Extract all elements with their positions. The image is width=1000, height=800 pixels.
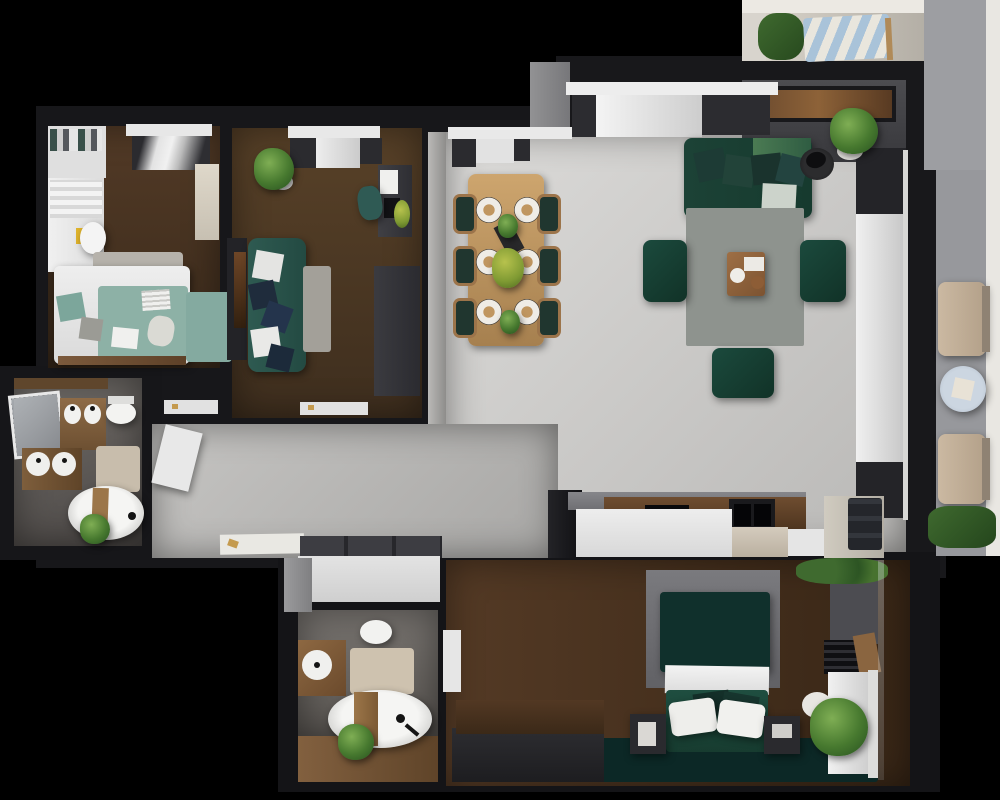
living-plant bbox=[830, 108, 878, 154]
bathw-toilet bbox=[106, 402, 136, 424]
window-bench-cushions bbox=[848, 498, 882, 550]
bedroom-terrace-glass bbox=[878, 560, 884, 780]
bedroom-plant bbox=[810, 698, 868, 756]
living-curtain-dark-left bbox=[572, 95, 596, 137]
terrace-armchair-north-frame bbox=[982, 286, 990, 352]
kids-pillow-striped bbox=[141, 289, 170, 311]
tv-panel bbox=[758, 90, 892, 118]
bedroom-hanging-plants bbox=[796, 558, 888, 584]
terrace-armchair-south-frame bbox=[982, 438, 990, 500]
bedroom-dresser-wood-top bbox=[456, 700, 604, 734]
bathw-basin-2-tap bbox=[62, 458, 67, 463]
terrace-flowers bbox=[928, 506, 996, 548]
bedroom-dresser bbox=[452, 728, 604, 782]
kids-room-door-handle bbox=[172, 404, 178, 409]
balcony-flower-plant bbox=[758, 13, 804, 60]
dining-chair-3 bbox=[456, 301, 474, 335]
dining-chair-4 bbox=[540, 197, 558, 231]
bathw-basin-2 bbox=[52, 452, 76, 476]
living-pouf-west bbox=[643, 240, 687, 302]
bathw-sink-north-2-tap bbox=[90, 406, 95, 411]
kitchen-cabinet-wood bbox=[732, 527, 788, 557]
place-setting-3 bbox=[476, 299, 502, 325]
coffee-table-tray bbox=[744, 257, 764, 271]
hall-sideboard-top bbox=[300, 536, 442, 558]
bathw-toilet-tank bbox=[108, 396, 134, 404]
office-desk-plant bbox=[394, 200, 410, 228]
dining-centerpiece-plant bbox=[492, 248, 524, 288]
bathw-shower-glass bbox=[11, 394, 63, 456]
bed-duvet bbox=[660, 592, 770, 672]
nightstand-west-books bbox=[638, 722, 656, 746]
office-monitor bbox=[380, 170, 398, 194]
dining-chair-1 bbox=[456, 197, 474, 231]
office-tv-screen bbox=[234, 252, 246, 328]
baths-rug bbox=[350, 648, 414, 694]
living-curtain-sheer bbox=[596, 95, 702, 137]
window-east-sheer bbox=[856, 214, 906, 462]
living-pouf-south bbox=[712, 348, 774, 398]
kids-bed-extension bbox=[186, 292, 232, 362]
apartment-floorplan-3d-render bbox=[0, 0, 1000, 800]
bathw-plant bbox=[80, 514, 110, 544]
terrace-table-tray bbox=[951, 377, 975, 401]
kids-bench bbox=[58, 356, 186, 365]
baths-sink-tap bbox=[314, 662, 320, 668]
office-door-handle bbox=[308, 405, 314, 410]
kids-wardrobe bbox=[195, 164, 219, 240]
office-sofa-pillow-1 bbox=[252, 250, 284, 282]
dining-chair-5 bbox=[540, 249, 558, 283]
bedroom-window-sill bbox=[868, 670, 878, 778]
dining-curtain-sheer bbox=[476, 139, 514, 163]
nightstand-east-item bbox=[772, 724, 792, 738]
kitchen-cabinet-white bbox=[576, 509, 732, 557]
dining-curtain-dark-left bbox=[452, 139, 476, 167]
kitchen-sink-bowl-left bbox=[734, 504, 751, 526]
living-pouf-east bbox=[800, 240, 846, 302]
north-wall-pillar bbox=[530, 62, 570, 132]
kids-pillow-white bbox=[111, 327, 139, 350]
kids-curtain-rod bbox=[126, 124, 212, 136]
kids-desk-slats bbox=[50, 180, 102, 218]
entry-door bbox=[284, 558, 312, 612]
baths-tub-tap bbox=[396, 714, 405, 723]
office-wardrobe bbox=[374, 266, 420, 396]
window-east-curtain-top bbox=[856, 148, 906, 214]
kitchen-sink-bowl-right bbox=[754, 504, 771, 526]
terrace-armchair-north bbox=[938, 282, 986, 356]
dining-curtain-dark-right bbox=[514, 139, 530, 161]
living-curtain-dark-right bbox=[702, 95, 770, 135]
bathw-tub-tap bbox=[128, 512, 136, 520]
bedroom-door bbox=[443, 630, 461, 692]
hall-closet-front bbox=[298, 556, 440, 602]
office-curtain-sheer bbox=[316, 138, 360, 168]
window-east-sill bbox=[903, 150, 908, 520]
coffee-table-cup bbox=[730, 268, 745, 283]
bathw-basin-1 bbox=[26, 452, 50, 476]
living-curtain-rod bbox=[566, 82, 778, 95]
bathw-sink-north-1-tap bbox=[70, 406, 75, 411]
bed-pillow-white-1 bbox=[668, 697, 718, 737]
bed-pillow-white-2 bbox=[716, 699, 766, 739]
office-curtain-dark-left bbox=[290, 138, 316, 168]
kids-shelf-contents bbox=[50, 129, 102, 151]
dining-centerpiece-small bbox=[498, 214, 518, 238]
bathw-shelf bbox=[14, 378, 108, 389]
office-curtain-rod bbox=[288, 126, 380, 138]
dining-plant-lower bbox=[500, 310, 520, 334]
baths-plant bbox=[338, 724, 374, 760]
kids-chair bbox=[80, 222, 106, 254]
coffee-table-bowl bbox=[751, 276, 764, 289]
baths-toilet bbox=[360, 620, 392, 644]
kids-pillow-knit bbox=[79, 317, 104, 342]
dining-chair-2 bbox=[456, 249, 474, 283]
office-runner-rug bbox=[303, 266, 331, 352]
deck-chair bbox=[803, 14, 891, 62]
dining-west-wall-face bbox=[428, 132, 446, 424]
bathw-basin-1-tap bbox=[36, 458, 41, 463]
terrace-floor-corner bbox=[924, 0, 990, 170]
dining-chair-6 bbox=[540, 301, 558, 335]
office-plant bbox=[254, 148, 294, 190]
terrace-armchair-south bbox=[938, 434, 986, 504]
dining-curtain-rod bbox=[448, 127, 572, 139]
office-curtain-dark-right bbox=[360, 138, 382, 164]
place-setting-4 bbox=[514, 197, 540, 223]
